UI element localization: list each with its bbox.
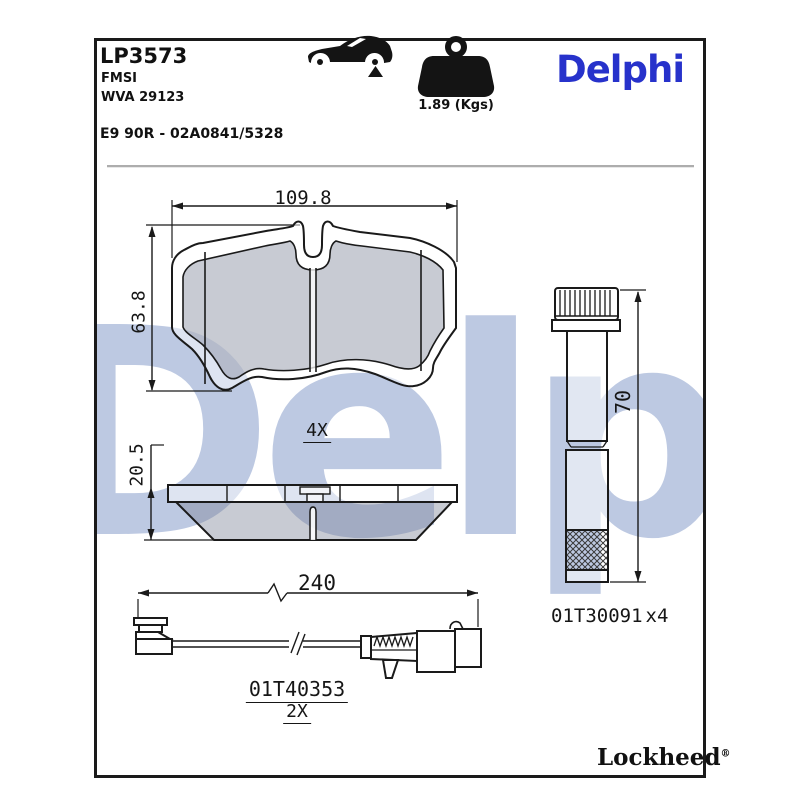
sensor-quantity-label: 2X bbox=[283, 701, 311, 724]
header-divider bbox=[107, 165, 694, 168]
brake-pad-side-view bbox=[144, 445, 457, 540]
guide-bolt-drawing bbox=[552, 288, 646, 582]
registered-trademark-icon: ® bbox=[721, 748, 731, 759]
weight-value: 1.89 (Kgs) bbox=[418, 98, 494, 113]
front-width-dimension: 109.8 bbox=[274, 187, 331, 209]
wear-sensor-drawing bbox=[134, 584, 481, 678]
weight-icon bbox=[418, 39, 494, 97]
technical-drawing-canvas bbox=[0, 0, 800, 800]
car-icon bbox=[308, 36, 392, 77]
pad-quantity-label: 4X bbox=[303, 420, 331, 443]
pad-thickness-dimension: 20.5 bbox=[127, 443, 148, 486]
front-height-dimension: 63.8 bbox=[129, 290, 150, 333]
delphi-logo: Delphi bbox=[556, 48, 684, 91]
bolt-part-label: 01T30091x4 bbox=[551, 605, 668, 627]
brake-pad-front-view bbox=[146, 200, 457, 391]
bolt-quantity-label: x4 bbox=[646, 605, 669, 627]
datasheet-page: Delphi bbox=[0, 0, 800, 800]
bolt-part-number: 01T30091 bbox=[551, 605, 643, 627]
part-number: LP3573 bbox=[100, 44, 187, 68]
wva-number: WVA 29123 bbox=[101, 90, 184, 105]
sensor-length-dimension: 240 bbox=[298, 571, 336, 595]
bolt-length-dimension: 70 bbox=[611, 390, 635, 414]
rear-axle-marker-icon bbox=[368, 66, 383, 77]
lockheed-logo-text: Lockheed bbox=[597, 744, 721, 771]
fmsi-label: FMSI bbox=[101, 71, 137, 86]
lockheed-logo: Lockheed® bbox=[597, 744, 731, 771]
sensor-part-number: 01T40353 bbox=[246, 677, 348, 703]
homologation-number: E9 90R - 02A0841/5328 bbox=[100, 126, 283, 142]
